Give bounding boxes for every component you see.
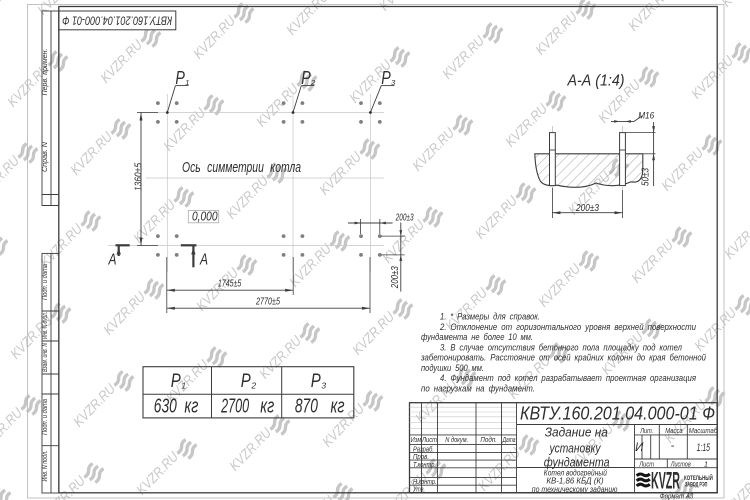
svg-text:А: А — [199, 252, 208, 269]
svg-text:KVZR.RU: KVZR.RU — [439, 32, 488, 82]
svg-text:KVZR.RU: KVZR.RU — [283, 0, 332, 38]
svg-text:KVZR.RU: KVZR.RU — [256, 332, 305, 382]
svg-text:630: 630 — [154, 395, 177, 418]
svg-text:Р: Р — [175, 68, 185, 88]
svg-text:КВТУ.160.201.04.000-01 Ф: КВТУ.160.201.04.000-01 Ф — [520, 403, 715, 423]
svg-text:Подп. и дата: Подп. и дата — [40, 264, 49, 300]
svg-text:N докум.: N докум. — [445, 435, 468, 444]
svg-text:KVZR.RU: KVZR.RU — [130, 196, 179, 246]
svg-text:KVZR.RU: KVZR.RU — [97, 36, 146, 86]
svg-text:1: 1 — [185, 78, 189, 87]
svg-text:2: 2 — [250, 381, 256, 391]
svg-text:1360±5: 1360±5 — [133, 163, 144, 191]
svg-text:кг: кг — [184, 395, 198, 418]
svg-text:2770±5: 2770±5 — [255, 296, 280, 307]
svg-text:KVZR.RU: KVZR.RU — [133, 448, 182, 498]
svg-text:1:15: 1:15 — [697, 442, 711, 454]
svg-text:Т.контр.: Т.контр. — [413, 460, 436, 469]
svg-text:KVZR.RU: KVZR.RU — [532, 8, 581, 58]
svg-text:фундамента: фундамента — [544, 454, 610, 469]
svg-text:KVZR.RU: KVZR.RU — [628, 236, 677, 286]
svg-text:Р: Р — [311, 371, 321, 392]
svg-text:Формат А3: Формат А3 — [660, 491, 694, 500]
svg-text:А-А (1:4): А-А (1:4) — [567, 73, 625, 90]
svg-text:Масса: Масса — [665, 426, 682, 435]
svg-text:1745±5: 1745±5 — [218, 278, 242, 289]
svg-text:870: 870 — [295, 395, 318, 418]
svg-text:KVZR.RU: KVZR.RU — [253, 80, 302, 130]
svg-text:Изм: Изм — [411, 435, 421, 444]
svg-text:KVZR: KVZR — [651, 467, 680, 494]
svg-text:КВТУ.160.201.04.000-01 Ф: КВТУ.160.201.04.000-01 Ф — [62, 13, 172, 27]
svg-text:Р: Р — [241, 371, 251, 392]
svg-text:KVZR.RU: KVZR.RU — [691, 304, 740, 354]
svg-text:1: 1 — [704, 459, 708, 468]
svg-text:200±3: 200±3 — [390, 266, 401, 289]
svg-text:KVZR.RU: KVZR.RU — [721, 212, 750, 262]
svg-text:кг: кг — [260, 395, 274, 418]
svg-text:2: 2 — [310, 78, 316, 87]
svg-text:кг: кг — [331, 395, 345, 418]
svg-text:Масштаб: Масштаб — [689, 426, 718, 435]
svg-text:Утв.: Утв. — [412, 485, 425, 494]
svg-text:Лист: Лист — [421, 435, 437, 444]
svg-text:2700: 2700 — [220, 395, 249, 418]
svg-text:Ось симметрии котла: Ось симметрии котла — [182, 160, 301, 176]
svg-text:Подп. и дата: Подп. и дата — [40, 399, 49, 435]
svg-text:KVZR.RU: KVZR.RU — [190, 12, 239, 62]
svg-text:Р: Р — [301, 68, 311, 88]
svg-text:KVZR.RU: KVZR.RU — [70, 380, 119, 430]
svg-text:KVZR.RU: KVZR.RU — [625, 0, 674, 34]
svg-text:0,000: 0,000 — [192, 209, 218, 224]
svg-text:KVZR.RU: KVZR.RU — [724, 464, 750, 500]
svg-text:KVZR.RU: KVZR.RU — [658, 144, 707, 194]
svg-text:Инв. N подл.: Инв. N подл. — [40, 451, 49, 482]
svg-text:3: 3 — [391, 78, 396, 87]
svg-text:KVZR.RU: KVZR.RU — [409, 124, 458, 174]
svg-text:А: А — [108, 252, 117, 269]
svg-text:1: 1 — [181, 381, 186, 391]
svg-text:Взам. инв. N: Взам. инв. N — [40, 342, 49, 372]
svg-text:Инв. N дубл.: Инв. N дубл. — [40, 312, 49, 339]
svg-text:KVZR.RU: KVZR.RU — [226, 424, 275, 474]
svg-text:И: И — [635, 442, 644, 454]
svg-text:KVZR.RU: KVZR.RU — [349, 308, 398, 358]
svg-text:по техническому заданию: по техническому заданию — [532, 485, 618, 494]
svg-text:Р: Р — [171, 371, 181, 392]
svg-text:Подп.: Подп. — [480, 435, 497, 444]
svg-text:Перв. примен.: Перв. примен. — [40, 48, 49, 95]
svg-text:М16: М16 — [638, 110, 655, 121]
svg-text:Дата: Дата — [502, 435, 515, 444]
svg-text:KVZR.RU: KVZR.RU — [688, 52, 737, 102]
svg-text:KVZR.RU: KVZR.RU — [37, 220, 86, 270]
svg-text:KVZR.RU: KVZR.RU — [502, 100, 551, 150]
svg-text:ЗАВОД РЭП: ЗАВОД РЭП — [685, 481, 708, 488]
svg-text:KVZR.RU: KVZR.RU — [0, 404, 26, 454]
svg-text:Лит.: Лит. — [639, 426, 653, 435]
svg-text:200±3: 200±3 — [575, 203, 599, 214]
svg-text:50±3: 50±3 — [641, 168, 652, 186]
svg-text:KVZR.RU: KVZR.RU — [223, 172, 272, 222]
svg-text:Справ. N: Справ. N — [40, 141, 49, 172]
svg-text:по нагрузкам на фундамент.: по нагрузкам на фундамент. — [421, 382, 535, 393]
svg-text:KVZR.RU: KVZR.RU — [535, 260, 584, 310]
svg-text:Задание на: Задание на — [545, 425, 608, 440]
svg-text:установку: установку — [549, 440, 602, 455]
svg-text:KVZR.RU: KVZR.RU — [0, 152, 23, 202]
svg-text:Р: Р — [381, 68, 391, 88]
svg-text:-: - — [671, 440, 675, 452]
svg-text:KVZR.RU: KVZR.RU — [100, 288, 149, 338]
svg-text:KVZR.RU: KVZR.RU — [67, 128, 116, 178]
svg-text:3: 3 — [321, 381, 326, 391]
svg-text:KVZR.RU: KVZR.RU — [316, 148, 365, 198]
svg-text:200±3: 200±3 — [395, 212, 414, 223]
svg-text:KVZR.RU: KVZR.RU — [472, 192, 521, 242]
